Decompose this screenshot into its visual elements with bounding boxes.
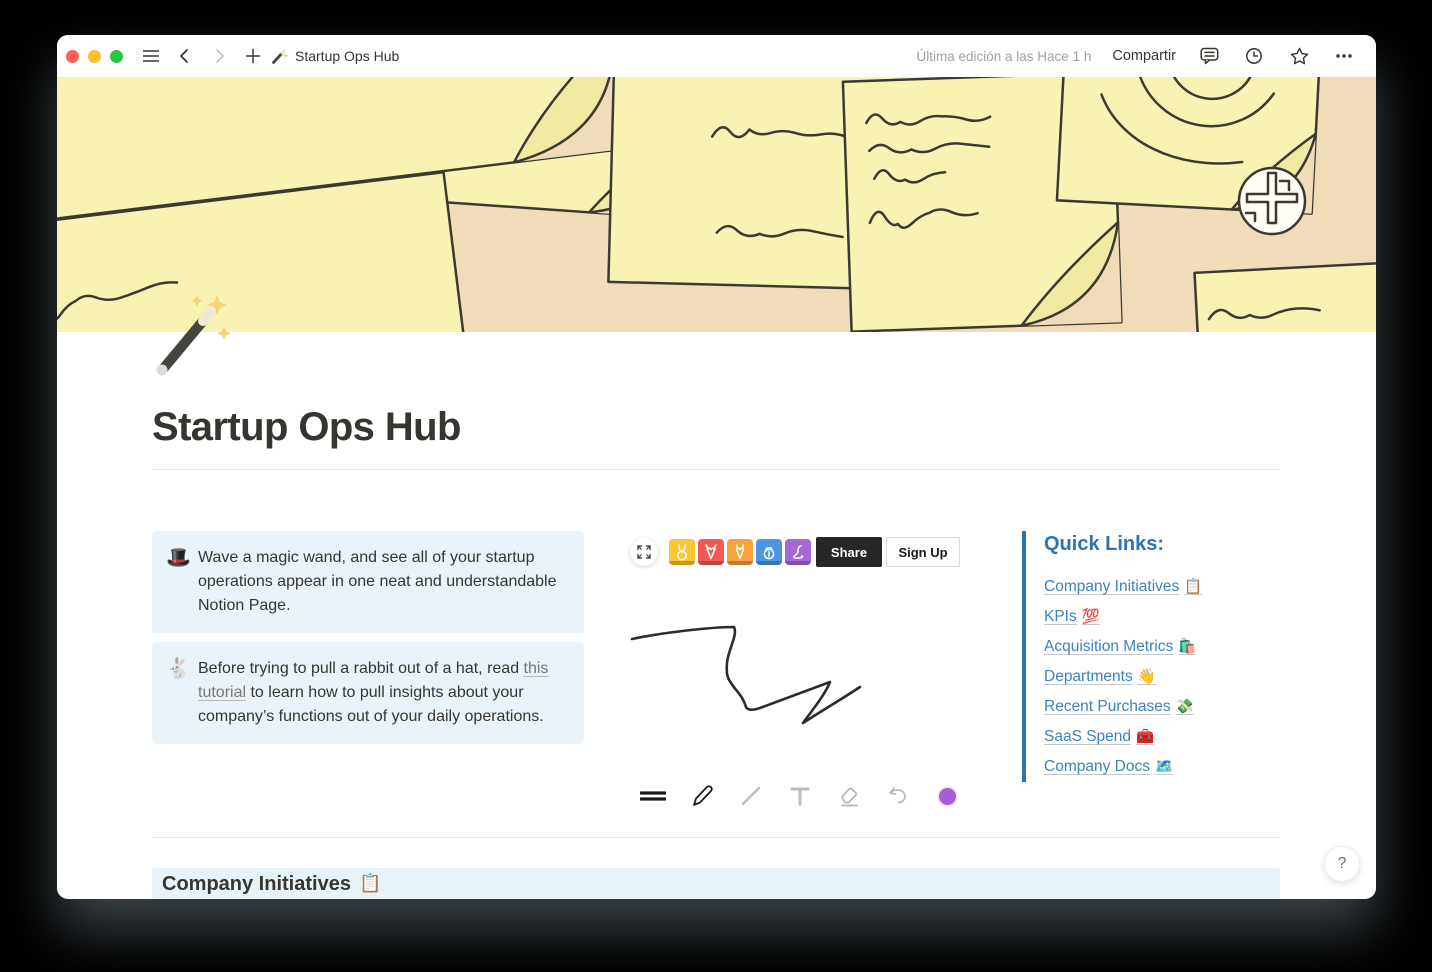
- link-kpis[interactable]: KPIs💯: [1044, 602, 1280, 632]
- link-recent-purchases[interactable]: Recent Purchases💸: [1044, 692, 1280, 722]
- link-label: KPIs: [1044, 608, 1077, 625]
- last-edited-label: Última edición a las Hace 1 h: [917, 49, 1092, 64]
- divider: [152, 469, 1280, 470]
- collaborator-avatars: [669, 539, 811, 565]
- waving-hand-emoji: 👋: [1138, 669, 1156, 685]
- canvas-drawing: [630, 575, 930, 755]
- whiteboard-toolbar: [630, 779, 970, 813]
- sticky-note: [1195, 260, 1376, 332]
- link-company-initiatives[interactable]: Company Initiatives📋: [1044, 572, 1280, 602]
- text-tool-icon[interactable]: [785, 781, 815, 811]
- whiteboard-share-button[interactable]: Share: [816, 537, 882, 567]
- cover-illustration: [57, 77, 1376, 332]
- lantern-avatar-button[interactable]: [756, 539, 782, 565]
- callout-magic-wand[interactable]: 🎩 Wave a magic wand, and see all of your…: [152, 531, 584, 633]
- link-company-docs[interactable]: Company Docs🗺️: [1044, 752, 1280, 782]
- snake-avatar-button[interactable]: [785, 539, 811, 565]
- world-map-emoji: 🗺️: [1155, 759, 1173, 775]
- clipboard-emoji: 📋: [1184, 579, 1202, 595]
- giraffe-avatar-button[interactable]: [727, 539, 753, 565]
- title-bar: Startup Ops Hub Última edición a las Hac…: [57, 35, 1376, 77]
- callout-text: Wave a magic wand, and see all of your s…: [198, 546, 568, 618]
- toolbox-emoji: 🧰: [1136, 729, 1154, 745]
- close-window-button[interactable]: [66, 50, 79, 63]
- page-icon-magic-wand[interactable]: [145, 285, 245, 385]
- breadcrumb[interactable]: Startup Ops Hub: [271, 48, 399, 65]
- fullscreen-icon[interactable]: [630, 538, 658, 566]
- money-with-wings-emoji: 💸: [1176, 699, 1194, 715]
- link-label: Company Initiatives: [1044, 578, 1179, 595]
- minimize-window-button[interactable]: [88, 50, 101, 63]
- updates-clock-icon[interactable]: [1242, 44, 1266, 68]
- link-label: Company Docs: [1044, 758, 1150, 775]
- new-page-icon[interactable]: [241, 44, 265, 68]
- rabbit-emoji: 🐇: [166, 657, 198, 729]
- section-title: Company Initiatives: [162, 873, 351, 896]
- comments-icon[interactable]: [1197, 44, 1221, 68]
- clipboard-emoji: 📋: [359, 873, 381, 894]
- back-icon[interactable]: [173, 44, 197, 68]
- favorite-star-icon[interactable]: [1287, 44, 1311, 68]
- breadcrumb-title: Startup Ops Hub: [295, 48, 399, 64]
- rabbit-avatar-button[interactable]: [669, 539, 695, 565]
- callout-text-before: Before trying to pull a rabbit out of a …: [198, 660, 524, 677]
- magic-wand-icon: [271, 48, 288, 65]
- company-initiatives-section-header[interactable]: Company Initiatives 📋: [152, 868, 1280, 899]
- cover-logo-badge: [1239, 168, 1305, 234]
- callout-tutorial[interactable]: 🐇 Before trying to pull a rabbit out of …: [152, 642, 584, 744]
- link-label: Recent Purchases: [1044, 698, 1171, 715]
- traffic-lights: [66, 50, 123, 63]
- notion-window: Startup Ops Hub Última edición a las Hac…: [57, 35, 1376, 899]
- hundred-points-emoji: 💯: [1082, 609, 1100, 625]
- forward-icon[interactable]: [207, 44, 231, 68]
- stroke-width-icon[interactable]: [638, 781, 668, 811]
- share-menu-button[interactable]: Compartir: [1112, 48, 1176, 64]
- link-departments[interactable]: Departments👋: [1044, 662, 1280, 692]
- deer-avatar-button[interactable]: [698, 539, 724, 565]
- divider: [152, 837, 1280, 838]
- whiteboard-canvas[interactable]: [630, 575, 970, 770]
- link-label: Departments: [1044, 668, 1133, 685]
- callout-text-after: to learn how to pull insights about your…: [198, 684, 544, 725]
- line-tool-icon[interactable]: [736, 781, 766, 811]
- link-saas-spend[interactable]: SaaS Spend🧰: [1044, 722, 1280, 752]
- callout-text: Before trying to pull a rabbit out of a …: [198, 657, 568, 729]
- pen-tool-icon[interactable]: [687, 781, 717, 811]
- eraser-tool-icon[interactable]: [834, 781, 864, 811]
- shopping-bags-emoji: 🛍️: [1178, 639, 1196, 655]
- help-button[interactable]: ?: [1324, 846, 1360, 882]
- undo-icon[interactable]: [883, 781, 913, 811]
- page-title[interactable]: Startup Ops Hub: [152, 405, 461, 450]
- whiteboard-signup-button[interactable]: Sign Up: [886, 537, 960, 567]
- more-options-icon[interactable]: [1332, 44, 1356, 68]
- sidebar-menu-icon[interactable]: [139, 44, 163, 68]
- top-hat-emoji: 🎩: [166, 546, 198, 618]
- color-picker-dot[interactable]: [932, 781, 962, 811]
- link-label: Acquisition Metrics: [1044, 638, 1173, 655]
- link-acquisition-metrics[interactable]: Acquisition Metrics🛍️: [1044, 632, 1280, 662]
- quick-links-block: Quick Links: Company Initiatives📋 KPIs💯 …: [1022, 531, 1280, 782]
- page-cover[interactable]: [57, 77, 1376, 332]
- quick-links-heading: Quick Links:: [1044, 533, 1280, 556]
- link-label: SaaS Spend: [1044, 728, 1131, 745]
- zoom-window-button[interactable]: [110, 50, 123, 63]
- whiteboard-header: Share Sign Up: [630, 536, 970, 568]
